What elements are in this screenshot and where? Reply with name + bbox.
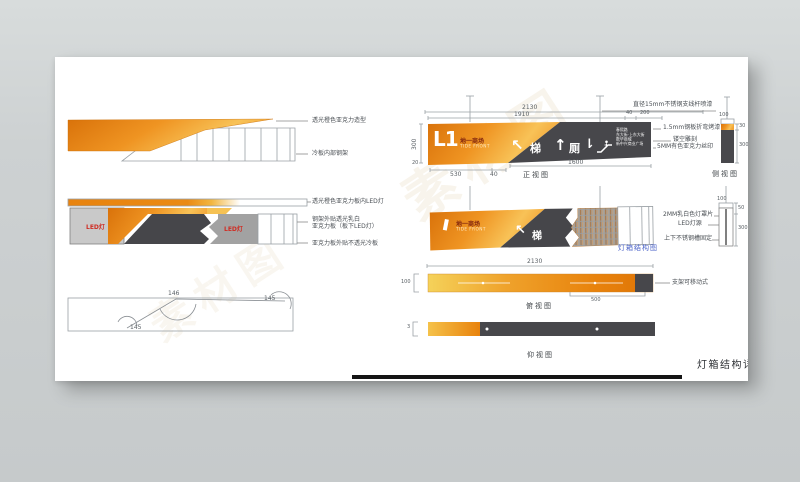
dim-label-2130: 2130 bbox=[527, 258, 542, 265]
angle-arc bbox=[160, 304, 196, 320]
side-cap bbox=[721, 119, 734, 124]
angle-label-145-left: 145 bbox=[130, 324, 141, 331]
side-view-label: 侧视图 bbox=[712, 169, 739, 179]
callout-cold-panel: 亚克力板外贴不透光冷板 bbox=[312, 240, 378, 247]
led-label-right: LED灯 bbox=[224, 224, 243, 233]
callout-led-inside: 透光橙色亚克力板内LED灯 bbox=[312, 198, 384, 205]
dim-label-300: 300 bbox=[739, 142, 748, 148]
dim-label-2130: 2130 bbox=[522, 104, 537, 111]
sheet-title: 灯箱结构详图 bbox=[697, 356, 748, 371]
topview-dark-end bbox=[635, 274, 653, 292]
arrow-up-left-icon: ↖ bbox=[515, 223, 526, 238]
highlight-dot bbox=[594, 282, 597, 285]
angle-label-146: 146 bbox=[168, 290, 179, 297]
callout-led-source: LED灯源 bbox=[678, 220, 702, 227]
bottom-black-bar bbox=[352, 375, 682, 379]
structure-wood-slats bbox=[571, 208, 619, 247]
callout-movable-bracket: 支架可移动式 bbox=[672, 279, 708, 286]
angle-outline-box bbox=[68, 298, 293, 331]
callout-steel-frame: 冷板内部钢架 bbox=[312, 150, 348, 157]
dim-label-300: 300 bbox=[738, 225, 748, 231]
logo-en: TIDE FRONT bbox=[460, 144, 490, 149]
led-label-left: LED灯 bbox=[86, 222, 105, 231]
directory-line: 新中兴商业广场 bbox=[616, 142, 652, 147]
callout-white-acrylic-2: 亚克力板（板下LED灯） bbox=[312, 223, 378, 230]
directory-text-block: 春熙路 东大街·上东大街 数华商城 新中兴商业广场 bbox=[616, 128, 652, 147]
escalator-char-icon: 梯 bbox=[530, 140, 541, 156]
section-cap bbox=[719, 203, 733, 208]
callout-acrylic-shape: 透光橙色亚克力造型 bbox=[312, 117, 366, 124]
dim-label-1910: 1910 bbox=[514, 111, 529, 118]
angle-label-145-right: 145 bbox=[264, 295, 275, 302]
angle-drawing bbox=[68, 292, 293, 331]
logo-l1: L1 bbox=[433, 127, 458, 151]
design-sheet-screen: 素材图 素材图 bbox=[0, 0, 800, 482]
bottom-view-drawing bbox=[413, 322, 655, 336]
dim-label-200: 200 bbox=[640, 110, 650, 116]
toilet-char-icon: 厕 bbox=[569, 140, 580, 156]
dim-label-100: 100 bbox=[719, 112, 729, 118]
dim-label-100: 100 bbox=[401, 279, 411, 285]
dim-label-500: 500 bbox=[591, 297, 601, 303]
dim-label-530: 530 bbox=[450, 171, 461, 178]
structure-logo-en: TIDE FRONT bbox=[456, 227, 486, 232]
profile-top-drawing bbox=[68, 119, 308, 161]
callout-milky-cover: 2MM乳白色灯罩片 bbox=[663, 211, 713, 218]
callout-rod: 直径15mm不锈钢支线杆喷漆 bbox=[633, 101, 712, 108]
structure-frame bbox=[618, 206, 654, 244]
dim-label-30: 30 bbox=[739, 123, 745, 129]
orange-fade-tail bbox=[207, 208, 232, 214]
frame-rung-line bbox=[649, 206, 650, 244]
highlight-dot bbox=[482, 282, 485, 285]
callout-white-acrylic-1: 钢架外贴透光乳白 bbox=[312, 216, 360, 223]
frame-rung-line bbox=[630, 207, 631, 245]
side-dark-body bbox=[721, 130, 734, 163]
side-orange-band bbox=[721, 124, 734, 130]
arrow-up-icon: ↑ bbox=[554, 136, 567, 154]
frame-section bbox=[258, 214, 297, 244]
fixing-dot bbox=[486, 328, 489, 331]
arrow-down-icon: ⇂ bbox=[584, 137, 595, 152]
dim-label-50: 50 bbox=[738, 205, 744, 211]
angle-polyline bbox=[127, 299, 285, 328]
dim-label-1600: 1600 bbox=[568, 159, 583, 166]
callout-hollow-carving: 镂空雕刻 bbox=[673, 136, 697, 143]
callout-colored-acrylic: 5MM有色亚克力丝印 bbox=[657, 143, 713, 150]
acrylic-strip bbox=[68, 199, 307, 206]
drawing-linework bbox=[0, 0, 748, 381]
dim-label-40: 40 bbox=[626, 110, 632, 116]
structure-view-label: 灯箱结构图 bbox=[618, 243, 658, 253]
dim-label-300: 300 bbox=[411, 139, 418, 150]
escalator-char-icon: 梯 bbox=[532, 227, 542, 242]
fixing-dot bbox=[596, 328, 599, 331]
dim-bracket-500 bbox=[570, 292, 645, 296]
dim-label-100: 100 bbox=[717, 196, 727, 202]
dim-label-40b: 40 bbox=[490, 171, 498, 178]
side-view-drawing bbox=[721, 97, 739, 163]
top-view-drawing bbox=[414, 264, 670, 296]
bottomview-orange-bar bbox=[428, 322, 480, 336]
dim-label-3: 3 bbox=[407, 324, 410, 330]
callout-steel-fix: 上下不锈钢槽固定 bbox=[664, 235, 712, 242]
arrow-up-left-icon: ↖ bbox=[511, 136, 524, 154]
dim-bracket-100 bbox=[414, 274, 419, 292]
bottom-view-label: 仰视图 bbox=[527, 350, 554, 360]
front-view-label: 正视图 bbox=[523, 170, 550, 180]
page-content: 素材图 素材图 bbox=[0, 0, 748, 381]
dim-label-20: 20 bbox=[412, 160, 418, 166]
top-view-label: 俯视图 bbox=[526, 301, 553, 311]
frame-rung-line bbox=[642, 207, 643, 245]
callout-steel-plate: 1.5mm钢板折弯烤漆 bbox=[663, 124, 720, 131]
escalator-icon bbox=[596, 140, 613, 154]
dim-bracket-3 bbox=[413, 322, 418, 336]
